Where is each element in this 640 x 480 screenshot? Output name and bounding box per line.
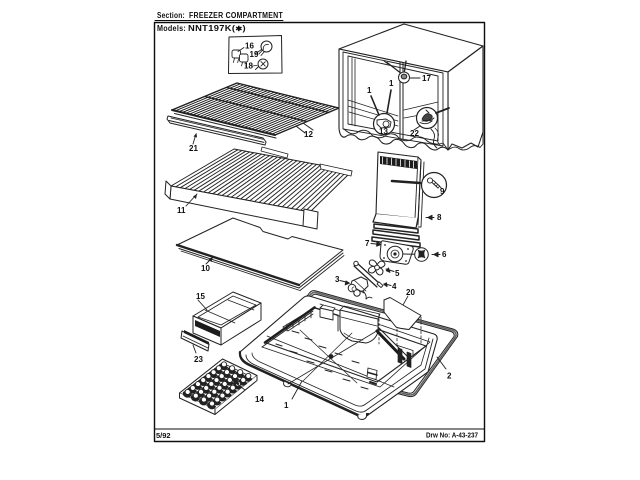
- svg-text:14: 14: [255, 395, 264, 404]
- svg-text:10: 10: [201, 264, 210, 273]
- svg-text:6: 6: [442, 250, 447, 259]
- svg-text:Section:: Section:: [157, 11, 185, 20]
- svg-text:11: 11: [177, 206, 186, 215]
- svg-text:19: 19: [250, 50, 259, 59]
- svg-text:17: 17: [422, 74, 431, 83]
- svg-text:5/92: 5/92: [156, 431, 171, 440]
- svg-text:12: 12: [304, 130, 313, 139]
- svg-text:8: 8: [437, 213, 442, 222]
- svg-text:7: 7: [365, 239, 370, 248]
- svg-text:15: 15: [196, 292, 205, 301]
- svg-text:Models:: Models:: [157, 24, 186, 33]
- svg-text:20: 20: [406, 288, 415, 297]
- svg-text:1: 1: [284, 401, 289, 410]
- svg-text:23: 23: [194, 355, 203, 364]
- svg-text:4: 4: [392, 282, 397, 291]
- svg-text:FREEZER COMPARTMENT: FREEZER COMPARTMENT: [189, 11, 283, 20]
- svg-text:1: 1: [389, 79, 394, 88]
- svg-text:2: 2: [447, 372, 452, 381]
- svg-text:1: 1: [367, 86, 372, 95]
- svg-text:9: 9: [440, 187, 445, 196]
- svg-text:3: 3: [335, 275, 340, 284]
- svg-text:5: 5: [395, 269, 400, 278]
- svg-text:18: 18: [244, 62, 253, 71]
- svg-text:NNT197K(✱): NNT197K(✱): [188, 24, 246, 33]
- svg-text:Drw No: A-43-237: Drw No: A-43-237: [426, 431, 478, 440]
- svg-text:13: 13: [379, 127, 388, 136]
- svg-text:21: 21: [189, 144, 198, 153]
- svg-text:22: 22: [410, 129, 419, 138]
